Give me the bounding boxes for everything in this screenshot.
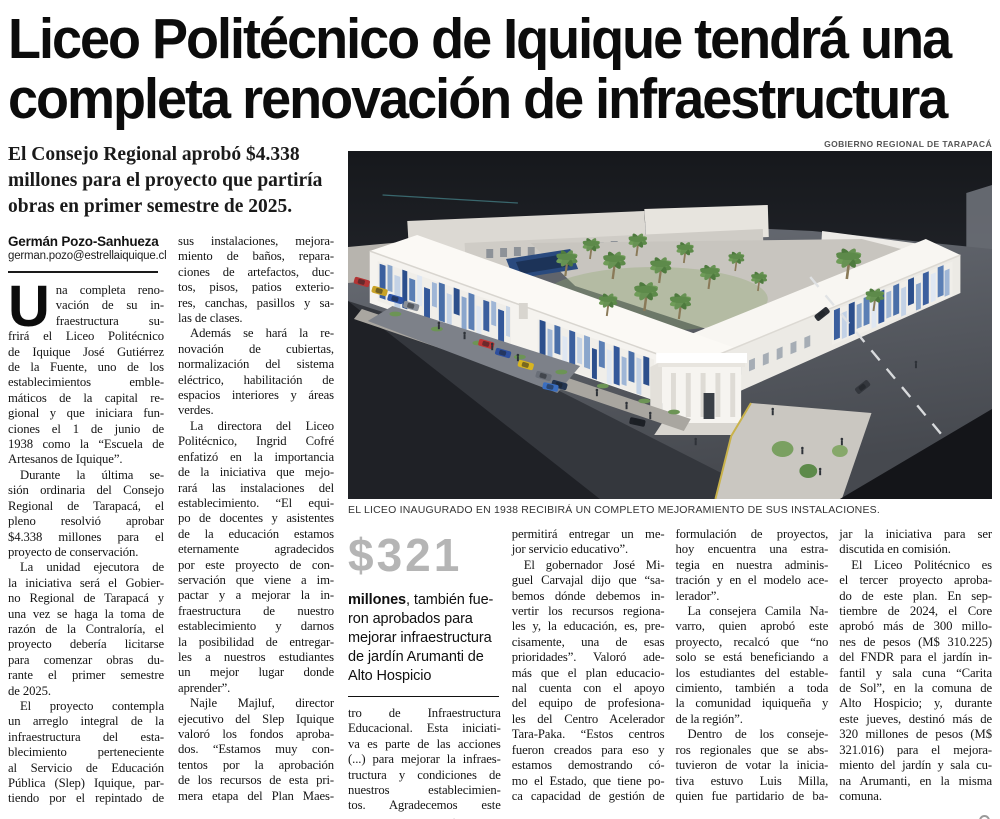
pullquote: $321 millones, también fue- ron aprobado… — [348, 531, 501, 697]
bottom-columns: $321 millones, también fue- ron aprobado… — [348, 527, 992, 819]
byline-rule — [8, 271, 158, 273]
article-body: El Consejo Regional aprobó $4.338millone… — [8, 136, 992, 819]
left-zone: El Consejo Regional aprobó $4.338millone… — [8, 136, 334, 819]
column-6-text: jar la iniciativa para serdiscutida en c… — [839, 527, 992, 804]
column-5: formulación de proyectos,hoy encuentra u… — [676, 527, 829, 819]
newspaper-page: Liceo Politécnico de Iquique tendrá una … — [0, 0, 1000, 819]
dropcap: U — [8, 285, 50, 329]
column-1: Germán Pozo-Sanhueza german.pozo@estrell… — [8, 234, 164, 807]
column-2-text: sus instalaciones, mejora-miento de baño… — [178, 234, 334, 804]
column-4-text: permitirá entregar un me-jor servicio ed… — [512, 527, 665, 804]
headline-line-2: completa renovación de infraestructura — [8, 68, 992, 130]
column-5-text: formulación de proyectos,hoy encuentra u… — [676, 527, 829, 804]
liceo-rendering-image — [348, 151, 992, 499]
photo-caption: EL LICEO INAUGURADO EN 1938 RECIBIRÁ UN … — [348, 504, 992, 516]
column-3: $321 millones, también fue- ron aprobado… — [348, 527, 501, 819]
column-3-text: tro de InfraestructuraEducacional. Esta … — [348, 706, 501, 819]
left-columns: Germán Pozo-Sanhueza german.pozo@estrell… — [8, 234, 334, 807]
column-4: permitirá entregar un me-jor servicio ed… — [512, 527, 665, 819]
column-1-text: na completa reno-vación de su in-fraestr… — [8, 283, 164, 807]
headline-line-1: Liceo Politécnico de Iquique tendrá una — [8, 8, 992, 70]
pullquote-text: millones, también fue- ron aprobados par… — [348, 591, 501, 686]
side-door — [519, 303, 528, 319]
article-end-icon — [979, 815, 990, 819]
lede: El Consejo Regional aprobó $4.338millone… — [8, 142, 334, 220]
column-2: sus instalaciones, mejora-miento de baño… — [178, 234, 334, 807]
pullquote-rule — [348, 696, 499, 697]
byline-email: german.pozo@estrellaiquique.cl — [8, 249, 164, 263]
byline: Germán Pozo-Sanhueza german.pozo@estrell… — [8, 234, 164, 273]
column-6: jar la iniciativa para serdiscutida en c… — [839, 527, 992, 819]
headline: Liceo Politécnico de Iquique tendrá una … — [8, 0, 992, 130]
byline-author: Germán Pozo-Sanhueza — [8, 234, 164, 249]
right-zone: GOBIERNO REGIONAL DE TARAPACÁ — [348, 136, 992, 819]
photo-credit: GOBIERNO REGIONAL DE TARAPACÁ — [348, 139, 992, 149]
pullquote-amount: $321 — [348, 531, 501, 579]
